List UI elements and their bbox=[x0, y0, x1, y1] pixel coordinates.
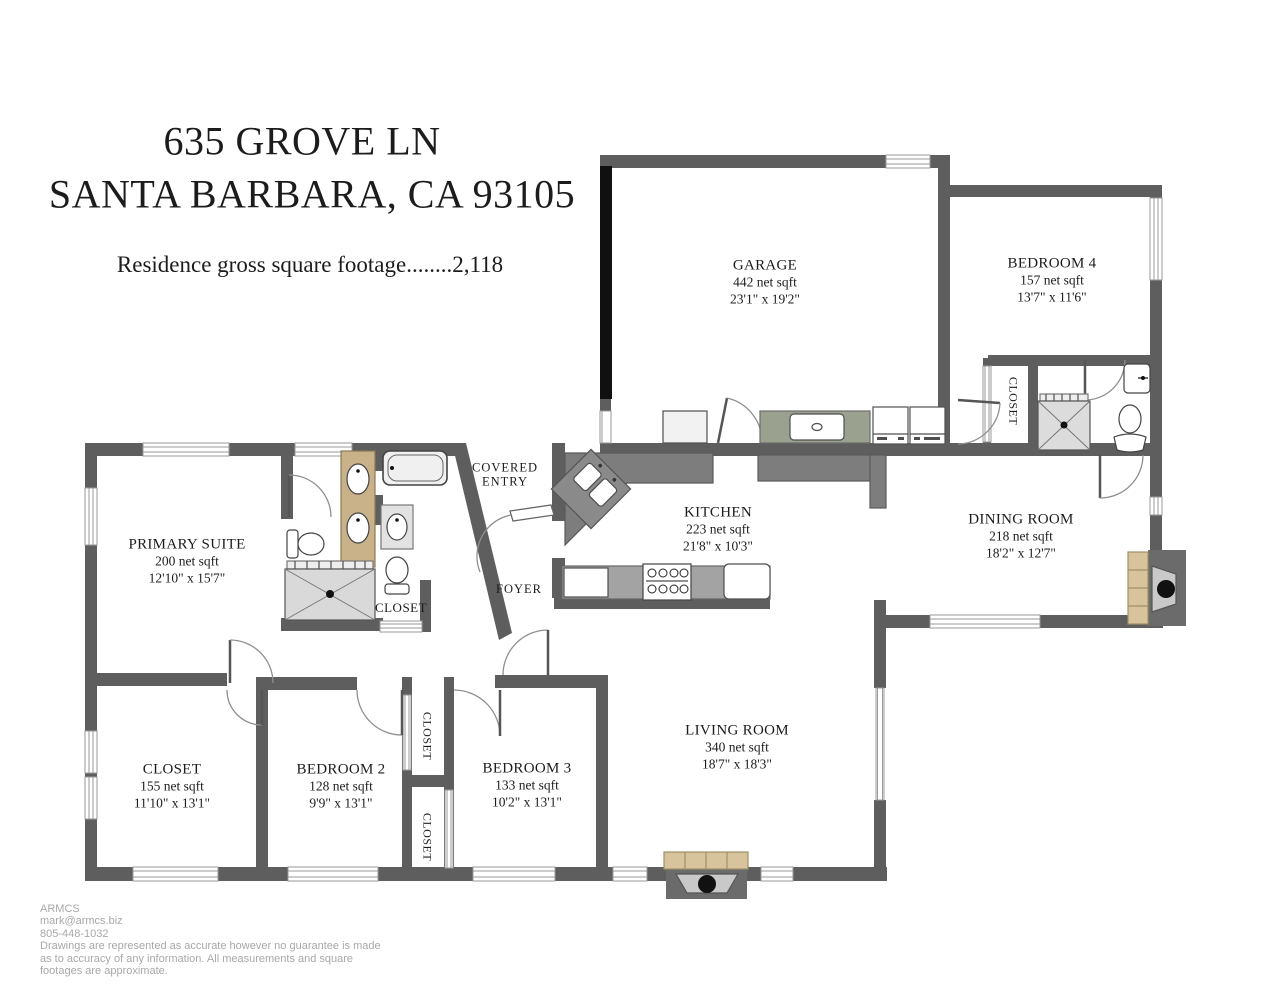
room-name: DINING ROOM bbox=[968, 511, 1073, 527]
primary-shower bbox=[285, 561, 375, 620]
bedroom4-toilet bbox=[1114, 405, 1146, 452]
primary-toilet1 bbox=[287, 530, 324, 558]
room-name: BEDROOM 2 bbox=[297, 761, 386, 777]
room-area: 128 net sqft bbox=[297, 780, 386, 795]
door-dining bbox=[1100, 455, 1143, 498]
room-dims: 11'10" x 13'1" bbox=[134, 796, 210, 811]
footer-disclaimer: Drawings are represented as accurate how… bbox=[40, 940, 381, 952]
closet-label-bedroom4: CLOSET bbox=[1006, 377, 1021, 425]
door-hall-bedroom4 bbox=[958, 400, 1000, 444]
footer-company: ARMCS bbox=[40, 903, 381, 915]
room-name: CLOSET bbox=[134, 761, 210, 777]
room-name: PRIMARY SUITE bbox=[128, 536, 245, 552]
foyer-label: FOYER bbox=[496, 583, 542, 597]
room-dims: 10'2" x 13'1" bbox=[483, 795, 572, 810]
stove bbox=[643, 564, 691, 600]
room-area: 155 net sqft bbox=[134, 780, 210, 795]
footer-email: mark@armcs.biz bbox=[40, 915, 381, 927]
dishwasher bbox=[564, 568, 608, 597]
room-label-dining-room: DINING ROOM 218 net sqft 18'2" x 12'7" bbox=[968, 511, 1073, 560]
room-label-garage: GARAGE 442 net sqft 23'1" x 19'2" bbox=[730, 257, 800, 306]
room-name: BEDROOM 4 bbox=[1008, 255, 1097, 271]
gross-square-footage: Residence gross square footage........2,… bbox=[117, 252, 503, 278]
bathtub bbox=[383, 451, 447, 485]
room-dims: 18'2" x 12'7" bbox=[968, 546, 1073, 561]
footer-disclaimer: footages are approximate. bbox=[40, 965, 381, 977]
room-area: 340 net sqft bbox=[685, 741, 789, 756]
room-area: 442 net sqft bbox=[730, 276, 800, 291]
room-dims: 13'7" x 11'6" bbox=[1008, 290, 1097, 305]
address-line-2: SANTA BARBARA, CA 93105 bbox=[49, 171, 575, 218]
primary-toilet2 bbox=[385, 557, 409, 594]
closet-label-hall-top: CLOSET bbox=[420, 712, 435, 760]
footer-disclaimer: as to accuracy of any information. All m… bbox=[40, 953, 381, 965]
room-dims: 23'1" x 19'2" bbox=[730, 292, 800, 307]
laundry-counter bbox=[760, 411, 870, 443]
room-dims: 12'10" x 15'7" bbox=[128, 571, 245, 586]
room-name: GARAGE bbox=[730, 257, 800, 273]
bedroom4-shower bbox=[1038, 394, 1090, 450]
room-name: LIVING ROOM bbox=[685, 722, 789, 738]
closet-label-hall-bottom: CLOSET bbox=[420, 813, 435, 861]
garage-left-wall bbox=[600, 166, 612, 399]
room-name: KITCHEN bbox=[683, 504, 753, 520]
covered-entry-label: COVERED ENTRY bbox=[472, 461, 538, 489]
room-dims: 21'8" x 10'3" bbox=[683, 539, 753, 554]
primary-vanity2 bbox=[381, 505, 413, 549]
door-bedroom2 bbox=[357, 690, 402, 735]
footer-block: ARMCS mark@armcs.biz 805-448-1032 Drawin… bbox=[40, 903, 381, 977]
room-area: 200 net sqft bbox=[128, 555, 245, 570]
refrigerator bbox=[724, 564, 770, 599]
primary-vanity bbox=[341, 451, 375, 567]
room-label-bedroom3: BEDROOM 3 133 net sqft 10'2" x 13'1" bbox=[483, 760, 572, 809]
door-garage bbox=[718, 398, 762, 443]
room-name: BEDROOM 3 bbox=[483, 760, 572, 776]
room-dims: 9'9" x 13'1" bbox=[297, 796, 386, 811]
room-label-bedroom4: BEDROOM 4 157 net sqft 13'7" x 11'6" bbox=[1008, 255, 1097, 304]
door-primary-suite bbox=[230, 640, 273, 683]
door-primary-bath bbox=[289, 475, 331, 517]
room-area: 218 net sqft bbox=[968, 530, 1073, 545]
room-area: 133 net sqft bbox=[483, 779, 572, 794]
footer-phone: 805-448-1032 bbox=[40, 928, 381, 940]
floorplan-page: 635 GROVE LN SANTA BARBARA, CA 93105 Res… bbox=[0, 0, 1280, 992]
room-label-bedroom2: BEDROOM 2 128 net sqft 9'9" x 13'1" bbox=[297, 761, 386, 810]
fireplace-dining bbox=[1128, 550, 1186, 626]
washer bbox=[873, 407, 908, 444]
room-label-primary-suite: PRIMARY SUITE 200 net sqft 12'10" x 15'7… bbox=[128, 536, 245, 585]
room-dims: 18'7" x 18'3" bbox=[685, 757, 789, 772]
room-label-closet-room: CLOSET 155 net sqft 11'10" x 13'1" bbox=[134, 761, 210, 810]
address-line-1: 635 GROVE LN bbox=[163, 118, 440, 165]
door-hall bbox=[503, 630, 548, 675]
room-area: 223 net sqft bbox=[683, 523, 753, 538]
fireplace-living bbox=[664, 852, 748, 899]
room-label-living-room: LIVING ROOM 340 net sqft 18'7" x 18'3" bbox=[685, 722, 789, 771]
garage-cabinet bbox=[663, 411, 707, 443]
bedroom4-sink bbox=[1124, 364, 1150, 393]
room-area: 157 net sqft bbox=[1008, 274, 1097, 289]
closet-label-primary: CLOSET bbox=[375, 600, 427, 616]
door-bedroom3 bbox=[454, 690, 500, 736]
dryer bbox=[910, 407, 945, 444]
room-label-kitchen: KITCHEN 223 net sqft 21'8" x 10'3" bbox=[683, 504, 753, 553]
